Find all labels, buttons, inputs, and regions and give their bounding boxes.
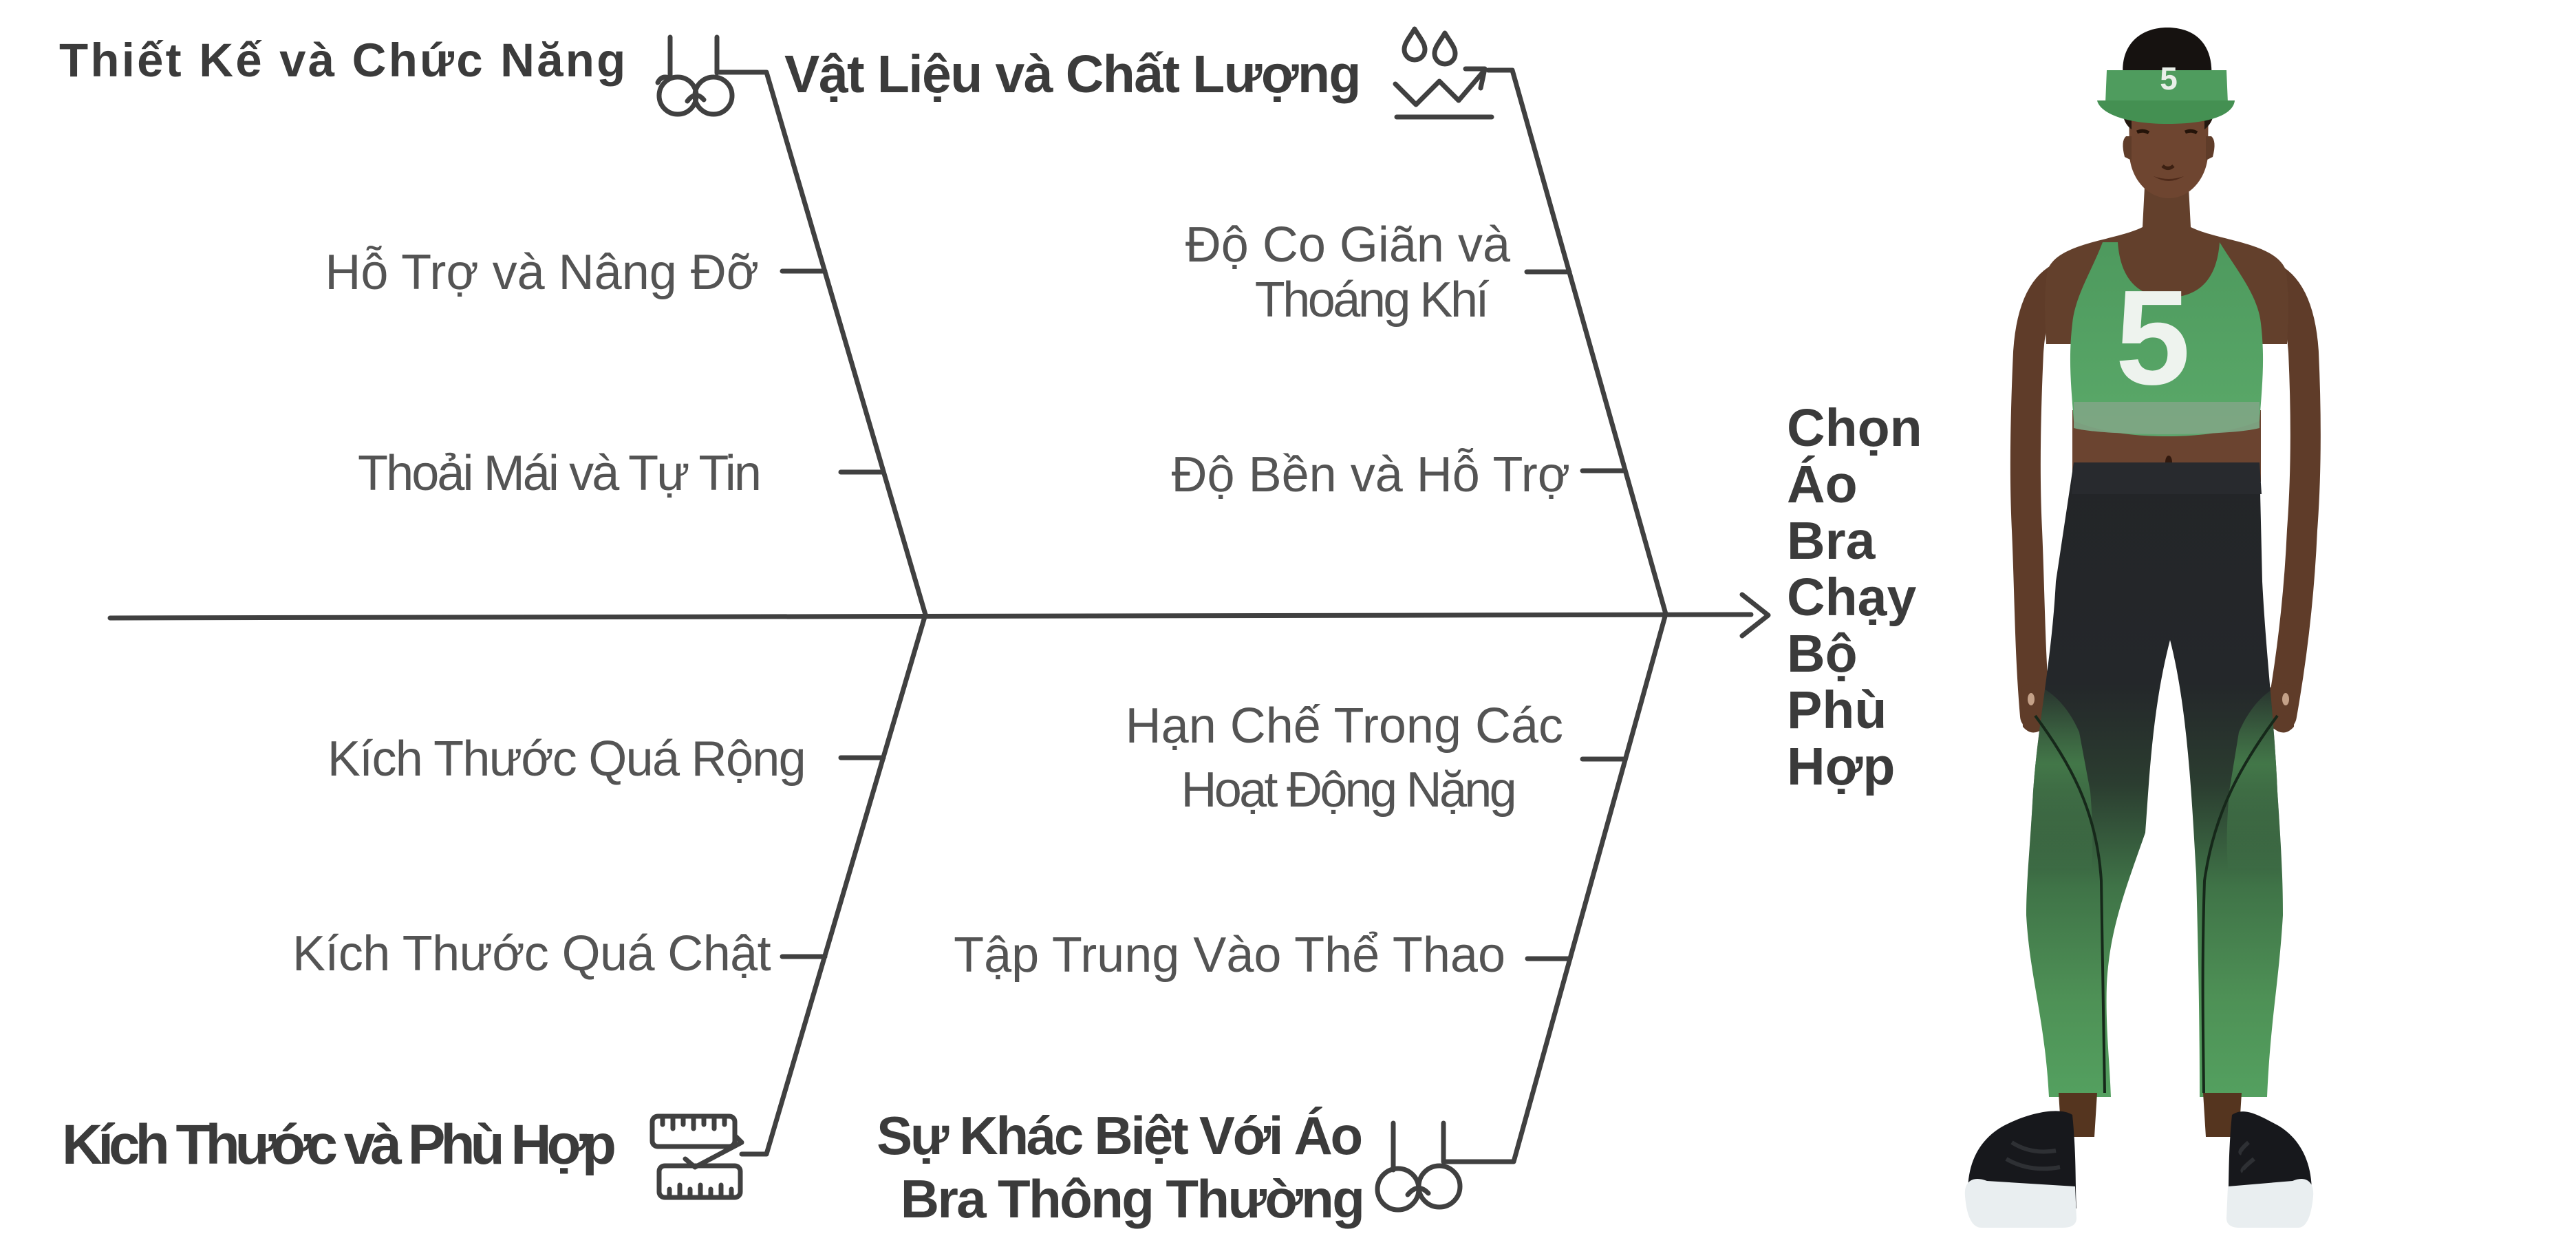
svg-text:Chạy: Chạy: [1787, 568, 1916, 627]
svg-text:Tập Trung Vào Thể Thao: Tập Trung Vào Thể Thao: [954, 928, 1505, 983]
svg-text:Áo: Áo: [1787, 454, 1858, 514]
svg-text:Kích Thước Quá Chật: Kích Thước Quá Chật: [292, 926, 771, 981]
svg-text:Thiết Kế và Chức Năng: Thiết Kế và Chức Năng: [59, 34, 627, 87]
svg-text:Vật Liệu và Chất Lượng: Vật Liệu và Chất Lượng: [784, 45, 1360, 104]
svg-text:5: 5: [2160, 61, 2178, 96]
svg-text:Phù: Phù: [1787, 681, 1887, 740]
svg-text:Độ Bền và Hỗ Trợ: Độ Bền và Hỗ Trợ: [1172, 447, 1570, 502]
svg-text:Bra Thông Thường: Bra Thông Thường: [901, 1169, 1364, 1229]
svg-text:Độ Co Giãn và: Độ Co Giãn và: [1185, 217, 1511, 273]
svg-text:Chọn: Chọn: [1787, 398, 1922, 458]
svg-text:Hoạt Động Nặng: Hoạt Động Nặng: [1181, 763, 1514, 818]
svg-text:Thoải Mái và Tự Tin: Thoải Mái và Tự Tin: [358, 446, 760, 501]
svg-text:Kích Thước Quá Rộng: Kích Thước Quá Rộng: [328, 732, 805, 787]
svg-text:Bra: Bra: [1787, 511, 1876, 571]
svg-text:5: 5: [2115, 262, 2190, 413]
svg-text:Thoáng Khí: Thoáng Khí: [1255, 273, 1490, 328]
svg-text:Bộ: Bộ: [1787, 624, 1858, 683]
svg-text:Hợp: Hợp: [1787, 737, 1895, 796]
svg-text:Hỗ Trợ và Nâng Đỡ: Hỗ Trợ và Nâng Đỡ: [325, 245, 759, 300]
svg-text:Sự Khác Biệt Với Áo: Sự Khác Biệt Với Áo: [877, 1105, 1361, 1166]
svg-text:Kích Thước và Phù Hợp: Kích Thước và Phù Hợp: [62, 1113, 614, 1176]
svg-text:Hạn Chế Trong Các: Hạn Chế Trong Các: [1126, 699, 1563, 754]
